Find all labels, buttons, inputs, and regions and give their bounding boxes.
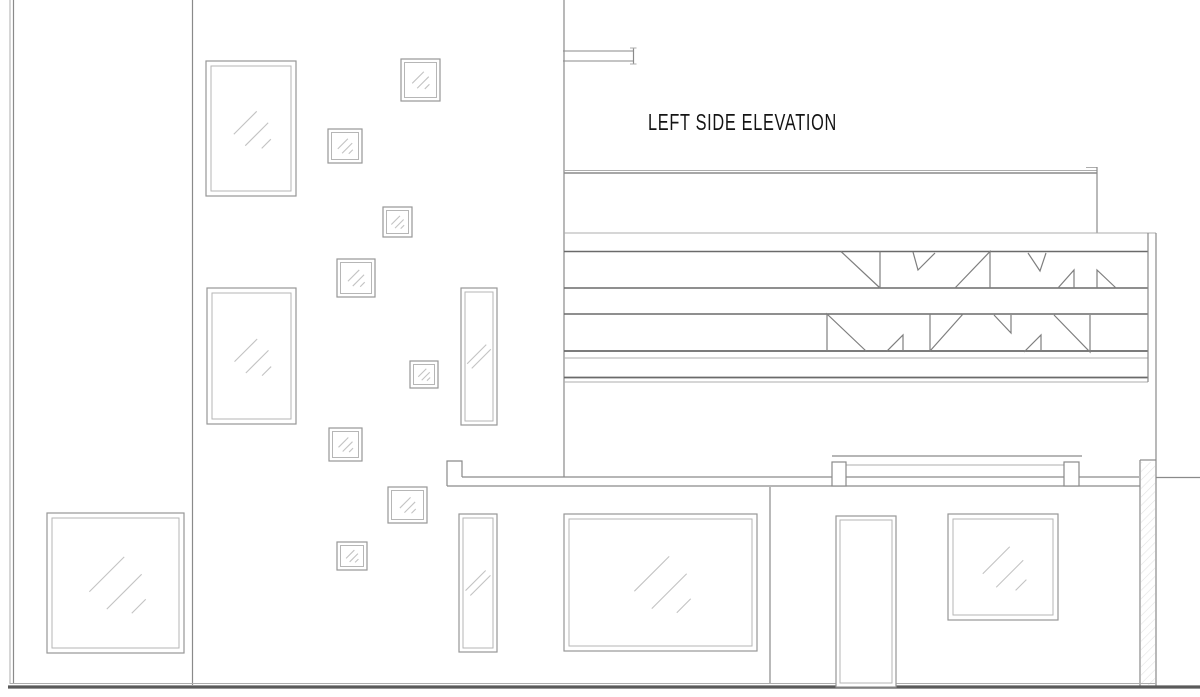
truss-triangle — [827, 314, 866, 351]
entry-door-frame — [836, 516, 896, 687]
truss-triangle — [930, 314, 963, 351]
window-square-3 — [383, 207, 412, 237]
window-ground-left — [47, 513, 184, 653]
window-square-7-frame — [388, 487, 427, 523]
entry-door — [836, 516, 896, 687]
window-square-2-frame — [328, 129, 362, 163]
truss-triangle — [1028, 253, 1046, 271]
parapet-block-left — [832, 462, 846, 486]
truss-triangle — [994, 315, 1011, 333]
window-square-8-frame — [337, 542, 367, 570]
parapet-block-right — [1064, 462, 1079, 486]
window-square-1 — [401, 59, 440, 101]
wall-hatch — [1141, 462, 1155, 685]
truss-triangle — [1058, 270, 1074, 288]
elevation-drawing: LEFT SIDE ELEVATION — [0, 0, 1200, 697]
window-square-5-frame — [410, 361, 438, 388]
window-ground-center-frame — [564, 514, 757, 651]
window-square-1-frame — [401, 59, 440, 101]
drawing-title: LEFT SIDE ELEVATION — [648, 109, 837, 135]
elevation-sheet: LEFT SIDE ELEVATION — [0, 0, 1200, 697]
truss-triangle — [913, 252, 935, 270]
window-slim-upper-frame — [461, 288, 497, 425]
window-square-8 — [337, 542, 367, 570]
window-square-4-frame — [337, 259, 375, 297]
drawing-geometry — [8, 0, 1200, 687]
window-slim-upper — [461, 288, 497, 425]
truss-triangle — [1054, 315, 1090, 352]
wall-cap-step — [447, 461, 462, 486]
window-square-4 — [337, 259, 375, 297]
window-square-2 — [328, 129, 362, 163]
window-portrait-lower-frame — [207, 288, 296, 424]
window-ground-right — [948, 514, 1058, 620]
window-square-7 — [388, 487, 427, 523]
truss-triangle — [887, 335, 903, 351]
truss-triangle — [1097, 270, 1116, 288]
window-ground-right-frame — [948, 514, 1058, 620]
window-square-3-frame — [383, 207, 412, 237]
window-square-6-frame — [329, 428, 362, 461]
window-portrait-upper — [206, 61, 296, 196]
truss-triangle — [841, 252, 880, 289]
window-square-6 — [329, 428, 362, 461]
window-ground-left-frame — [47, 513, 184, 653]
window-slim-lower — [459, 514, 497, 652]
window-portrait-upper-frame — [206, 61, 296, 196]
window-slim-lower-frame — [459, 514, 497, 652]
truss-triangle — [1024, 335, 1041, 352]
window-square-5 — [410, 361, 438, 388]
truss-triangle — [955, 252, 990, 289]
window-portrait-lower — [207, 288, 296, 424]
window-ground-center — [564, 514, 757, 651]
